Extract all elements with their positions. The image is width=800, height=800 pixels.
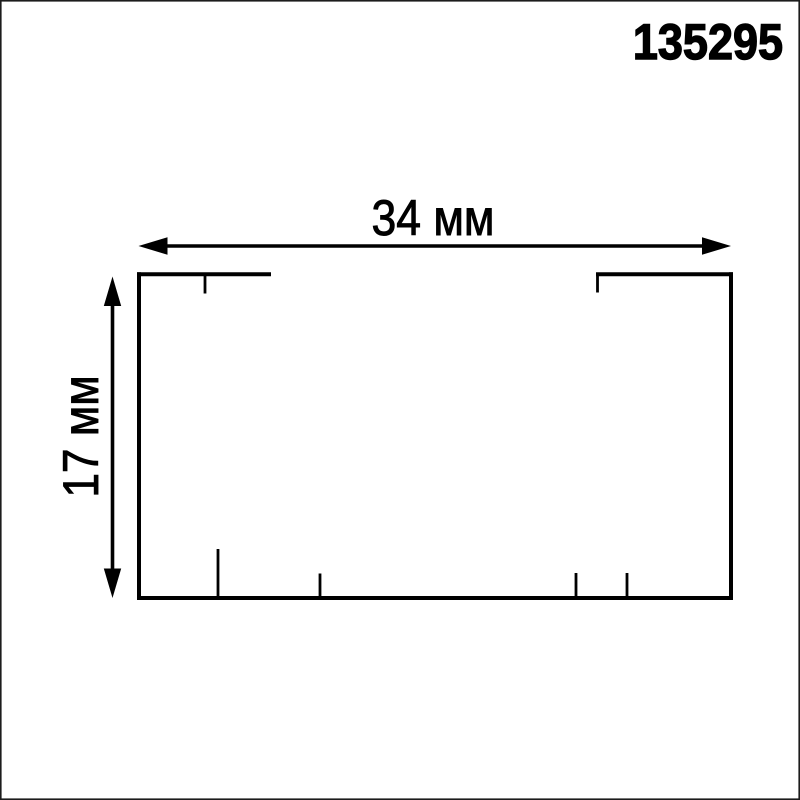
svg-text:34 мм: 34 мм	[371, 191, 494, 247]
svg-text:135295: 135295	[633, 15, 783, 71]
svg-text:17 мм: 17 мм	[54, 375, 110, 497]
